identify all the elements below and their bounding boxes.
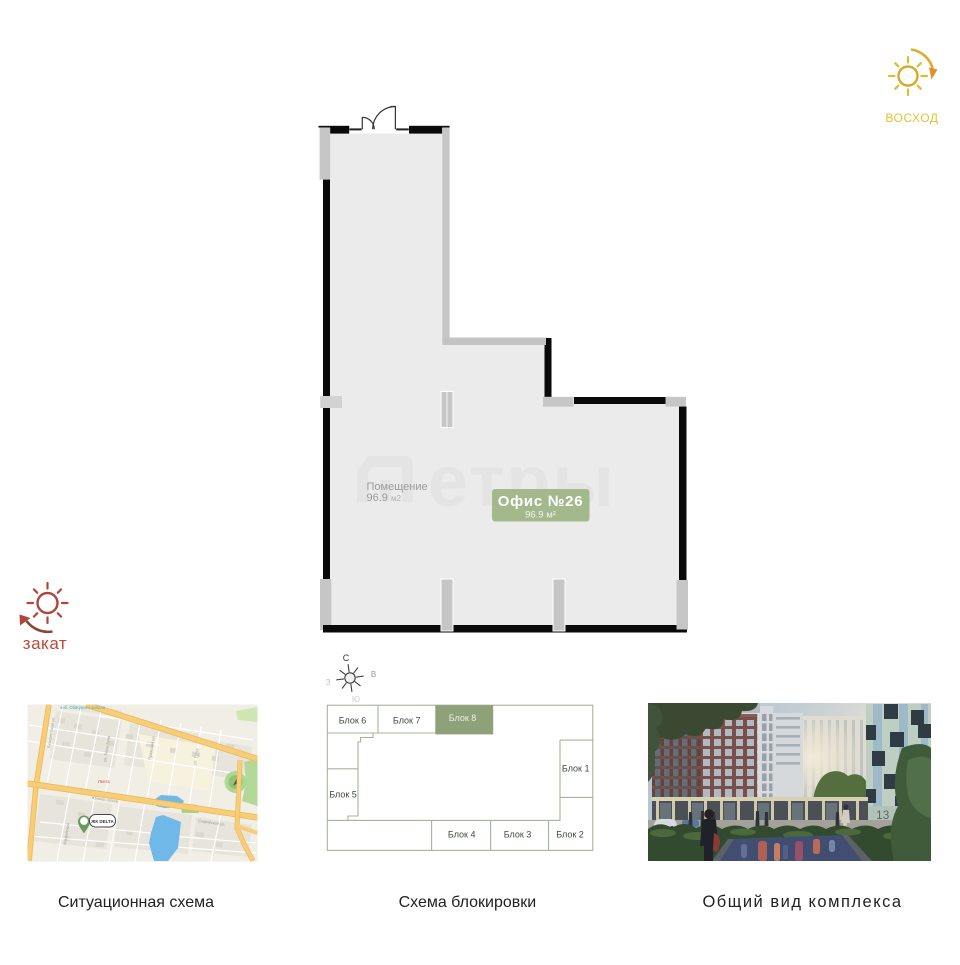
svg-text:Блок 2: Блок 2 bbox=[556, 830, 584, 840]
svg-text:ВОСХОД: ВОСХОД bbox=[885, 111, 938, 125]
svg-text:В: В bbox=[371, 670, 376, 679]
svg-text:Ю: Ю bbox=[352, 695, 360, 704]
svg-text:Блок 7: Блок 7 bbox=[393, 716, 421, 726]
svg-text:Блок 5: Блок 5 bbox=[329, 790, 357, 800]
svg-text:закат: закат bbox=[23, 634, 67, 653]
svg-text:ЖК DELTA: ЖК DELTA bbox=[90, 819, 114, 824]
svg-text:Блок 8: Блок 8 bbox=[449, 713, 477, 723]
svg-text:Общий вид комплекса: Общий вид комплекса bbox=[702, 893, 902, 911]
svg-text:наб. Обводного канала: наб. Обводного канала bbox=[60, 705, 106, 710]
svg-text:Схема блокировки: Схема блокировки bbox=[399, 894, 537, 911]
svg-text:Лента: Лента bbox=[98, 779, 110, 784]
svg-text:С: С bbox=[343, 653, 350, 663]
svg-text:Блок 4: Блок 4 bbox=[448, 830, 476, 840]
svg-text:96.9 м²: 96.9 м² bbox=[525, 510, 556, 521]
svg-text:96.9 м2: 96.9 м2 bbox=[367, 492, 402, 504]
svg-text:Блок 1: Блок 1 bbox=[562, 764, 590, 774]
svg-text:З: З bbox=[326, 678, 331, 687]
svg-text:Блок 6: Блок 6 bbox=[339, 716, 367, 726]
svg-text:Блок 3: Блок 3 bbox=[504, 830, 532, 840]
svg-text:Офис №26: Офис №26 bbox=[498, 493, 584, 510]
svg-text:Ситуационная схема: Ситуационная схема bbox=[58, 894, 214, 911]
